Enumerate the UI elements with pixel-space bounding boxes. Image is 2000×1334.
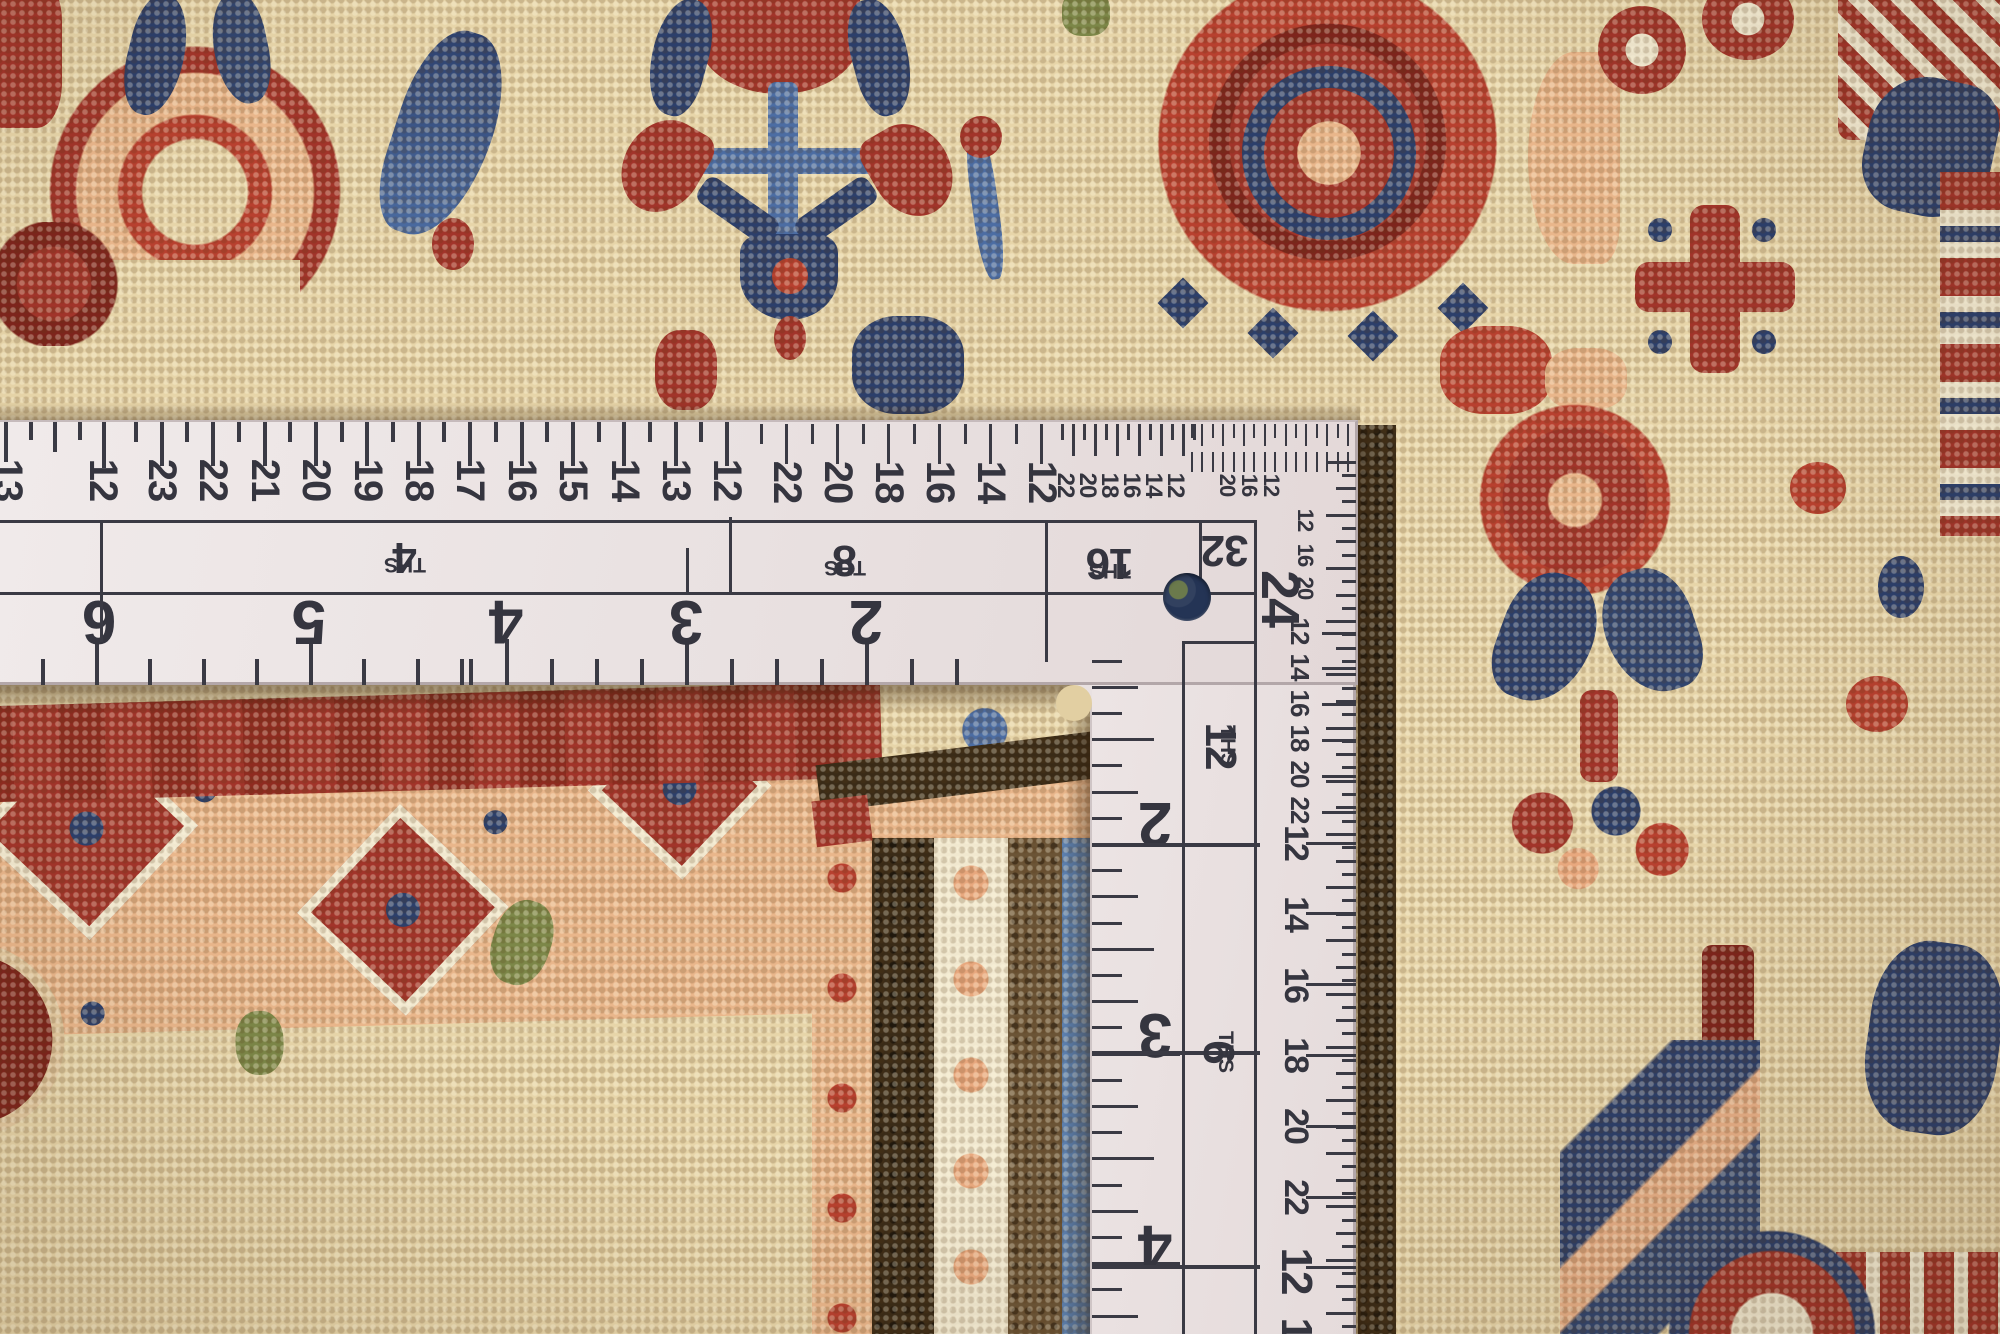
rug-motif-dark-red-bar <box>1702 945 1754 1145</box>
label-band-bottom-line <box>0 592 1256 595</box>
rug-motif-red-medallion <box>1100 0 1555 350</box>
rug-motif-navy-leaf <box>1480 560 1612 716</box>
rug-motif-floret <box>1702 0 1794 60</box>
rug-motif-navy-leaf <box>114 0 198 121</box>
rug-motif-navy-blob <box>1855 934 2000 1143</box>
label-band-divider <box>686 548 689 594</box>
vertical-label-suffix: THS <box>1213 1031 1237 1073</box>
rug-motif-red-bit <box>1440 326 1552 414</box>
rug-motif-green-sprig <box>235 1010 285 1075</box>
band-label-suffix: THS <box>384 552 426 576</box>
label-band-top-line <box>0 520 1256 523</box>
rug-motif-red-dot <box>1790 462 1846 514</box>
rug-motif-blue-sprig <box>962 127 1009 281</box>
rug-border-vertical-blue <box>1062 838 1090 1334</box>
label-band-divider <box>100 520 103 642</box>
rug-motif-bottom-right-arc <box>1640 1172 1904 1334</box>
rug-motif-blue-leaf <box>365 18 522 249</box>
rug-motif-blue-crossbar <box>688 148 884 174</box>
rug-motif-red-hook <box>853 109 969 231</box>
rug-border-vertical-cream <box>934 838 1008 1334</box>
band-label-8ths: 8 THS <box>765 535 925 585</box>
rug-motif-center-core <box>698 0 860 94</box>
ruler-alignment-hole <box>1163 573 1211 621</box>
rug-motif-edge-stripes <box>1940 172 2000 536</box>
rug-motif-pendant-tip <box>774 316 806 360</box>
rug-motif-navy-blade <box>791 173 880 248</box>
rug-motif-navy-dot <box>1752 330 1776 354</box>
rug-motif-pendant <box>740 234 838 320</box>
rug-motif-red-tip <box>432 218 474 270</box>
vertical-inch-line-4 <box>1092 1265 1260 1269</box>
rug-motif-red-cluster <box>0 222 122 346</box>
rug-motif-navy-dot <box>1648 330 1672 354</box>
rug-motif-corner-checks <box>1838 0 2000 140</box>
vertical-label-12ths: 12 THS <box>1190 666 1250 826</box>
ruler-inner-corner-fillet <box>1056 685 1092 721</box>
rug-motif-navy-blade <box>693 173 782 248</box>
rug-motif-navy-leaf <box>203 0 279 108</box>
band-label-suffix: THS <box>1089 558 1131 582</box>
band-label-4ths: 4 THS <box>325 532 485 582</box>
label-band-divider <box>729 517 732 594</box>
vertical-arm-label-divider <box>1182 641 1185 1334</box>
rug-motif-floret <box>1598 6 1686 94</box>
rug-motif-navy-spike <box>1248 308 1299 359</box>
rug-motif-red-hook <box>605 105 721 227</box>
rug-motif-navy-spike <box>1348 311 1399 362</box>
rug-border-bands <box>0 681 901 1334</box>
rug-motif-red-blob <box>0 0 62 128</box>
rug-motif-navy-leaf <box>1589 557 1714 705</box>
rug-motif-blue-stem <box>768 82 798 254</box>
rug-motif-navy-dot <box>80 1001 105 1026</box>
rug-motif-red-dot <box>1846 676 1908 732</box>
rug-motif-navy-bit <box>852 316 964 414</box>
rug-border-brown-stripe <box>1358 425 1396 1334</box>
band-label-suffix: THS <box>824 555 866 579</box>
rug-motif-pendant-dot <box>772 258 808 294</box>
rug-motif-green-accent <box>1062 0 1110 36</box>
rug-motif-cross-flower <box>1635 262 1795 312</box>
rug-motif-navy-leaf <box>638 0 723 121</box>
band-label-number: 32 <box>1202 525 1249 575</box>
rug-motif-navy-blob <box>1853 66 2000 228</box>
corner-scale-number: 24 <box>1242 570 1318 626</box>
rug-border-vertical-brown2 <box>1008 838 1062 1334</box>
rug-motif-navy-dot <box>1878 556 1924 618</box>
rug-field-patch <box>90 260 300 360</box>
rug-motif-dark-red-boss <box>0 939 67 1139</box>
vertical-label-box-line <box>1182 641 1257 644</box>
band-label-32nds: 32 <box>1185 527 1265 573</box>
rug-motif-navy-leaf <box>838 0 923 121</box>
rug-motif-red-dot <box>960 116 1002 158</box>
rug-motif-navy-dot <box>1752 218 1776 242</box>
vertical-label-suffix: THS <box>1215 725 1239 767</box>
rug-motif-mixed-cluster <box>1490 775 1700 895</box>
rug-motif-navy-ring <box>1242 66 1416 240</box>
rug-motif-red-flower <box>1470 400 1680 600</box>
rug-motif-salmon-bit <box>1545 348 1627 410</box>
rug-motif-salmon-arc <box>1528 52 1620 264</box>
rug-photo-with-ruler: 1312 232221201918171615141312 2220181614… <box>0 0 2000 1334</box>
rug-motif-navy-dot <box>483 810 508 835</box>
rug-motif-navy-dot <box>1648 218 1672 242</box>
rug-motif-red-stem <box>1580 690 1618 782</box>
band-label-16ths: 16 THS <box>1030 538 1190 588</box>
rug-motif-navy-branch <box>1560 1040 1760 1334</box>
rug-motif-arch-medallion <box>20 15 370 355</box>
vertical-label-6ths: 6 THS <box>1188 972 1248 1132</box>
rug-motif-red-stripe <box>1792 1252 2000 1334</box>
vertical-inch-line-2 <box>1092 843 1260 847</box>
rug-motif-navy-spike <box>1438 283 1489 334</box>
rug-motif-red-bit <box>655 330 717 410</box>
rug-motif-diamond-flower <box>297 804 509 1016</box>
rug-motif-cross-flower <box>1690 205 1740 373</box>
rug-motif-navy-spike <box>1158 278 1209 329</box>
